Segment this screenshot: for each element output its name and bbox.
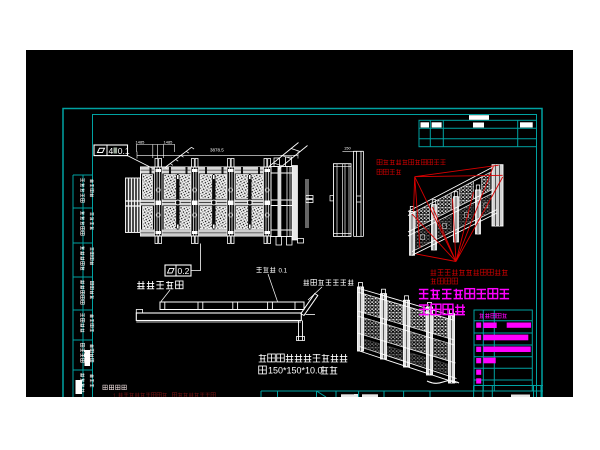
svg-text:0.1: 0.1 [118, 146, 130, 156]
svg-text:1485: 1485 [136, 140, 146, 145]
svg-text:150*150*10.0: 150*150*10.0 [268, 366, 323, 376]
svg-text:150: 150 [344, 146, 351, 151]
svg-text:0.1: 0.1 [279, 268, 288, 275]
svg-text:1485: 1485 [164, 140, 174, 145]
svg-text:3878.5: 3878.5 [210, 147, 224, 152]
svg-text:0.2: 0.2 [178, 266, 190, 276]
svg-text:4: 4 [109, 146, 114, 156]
